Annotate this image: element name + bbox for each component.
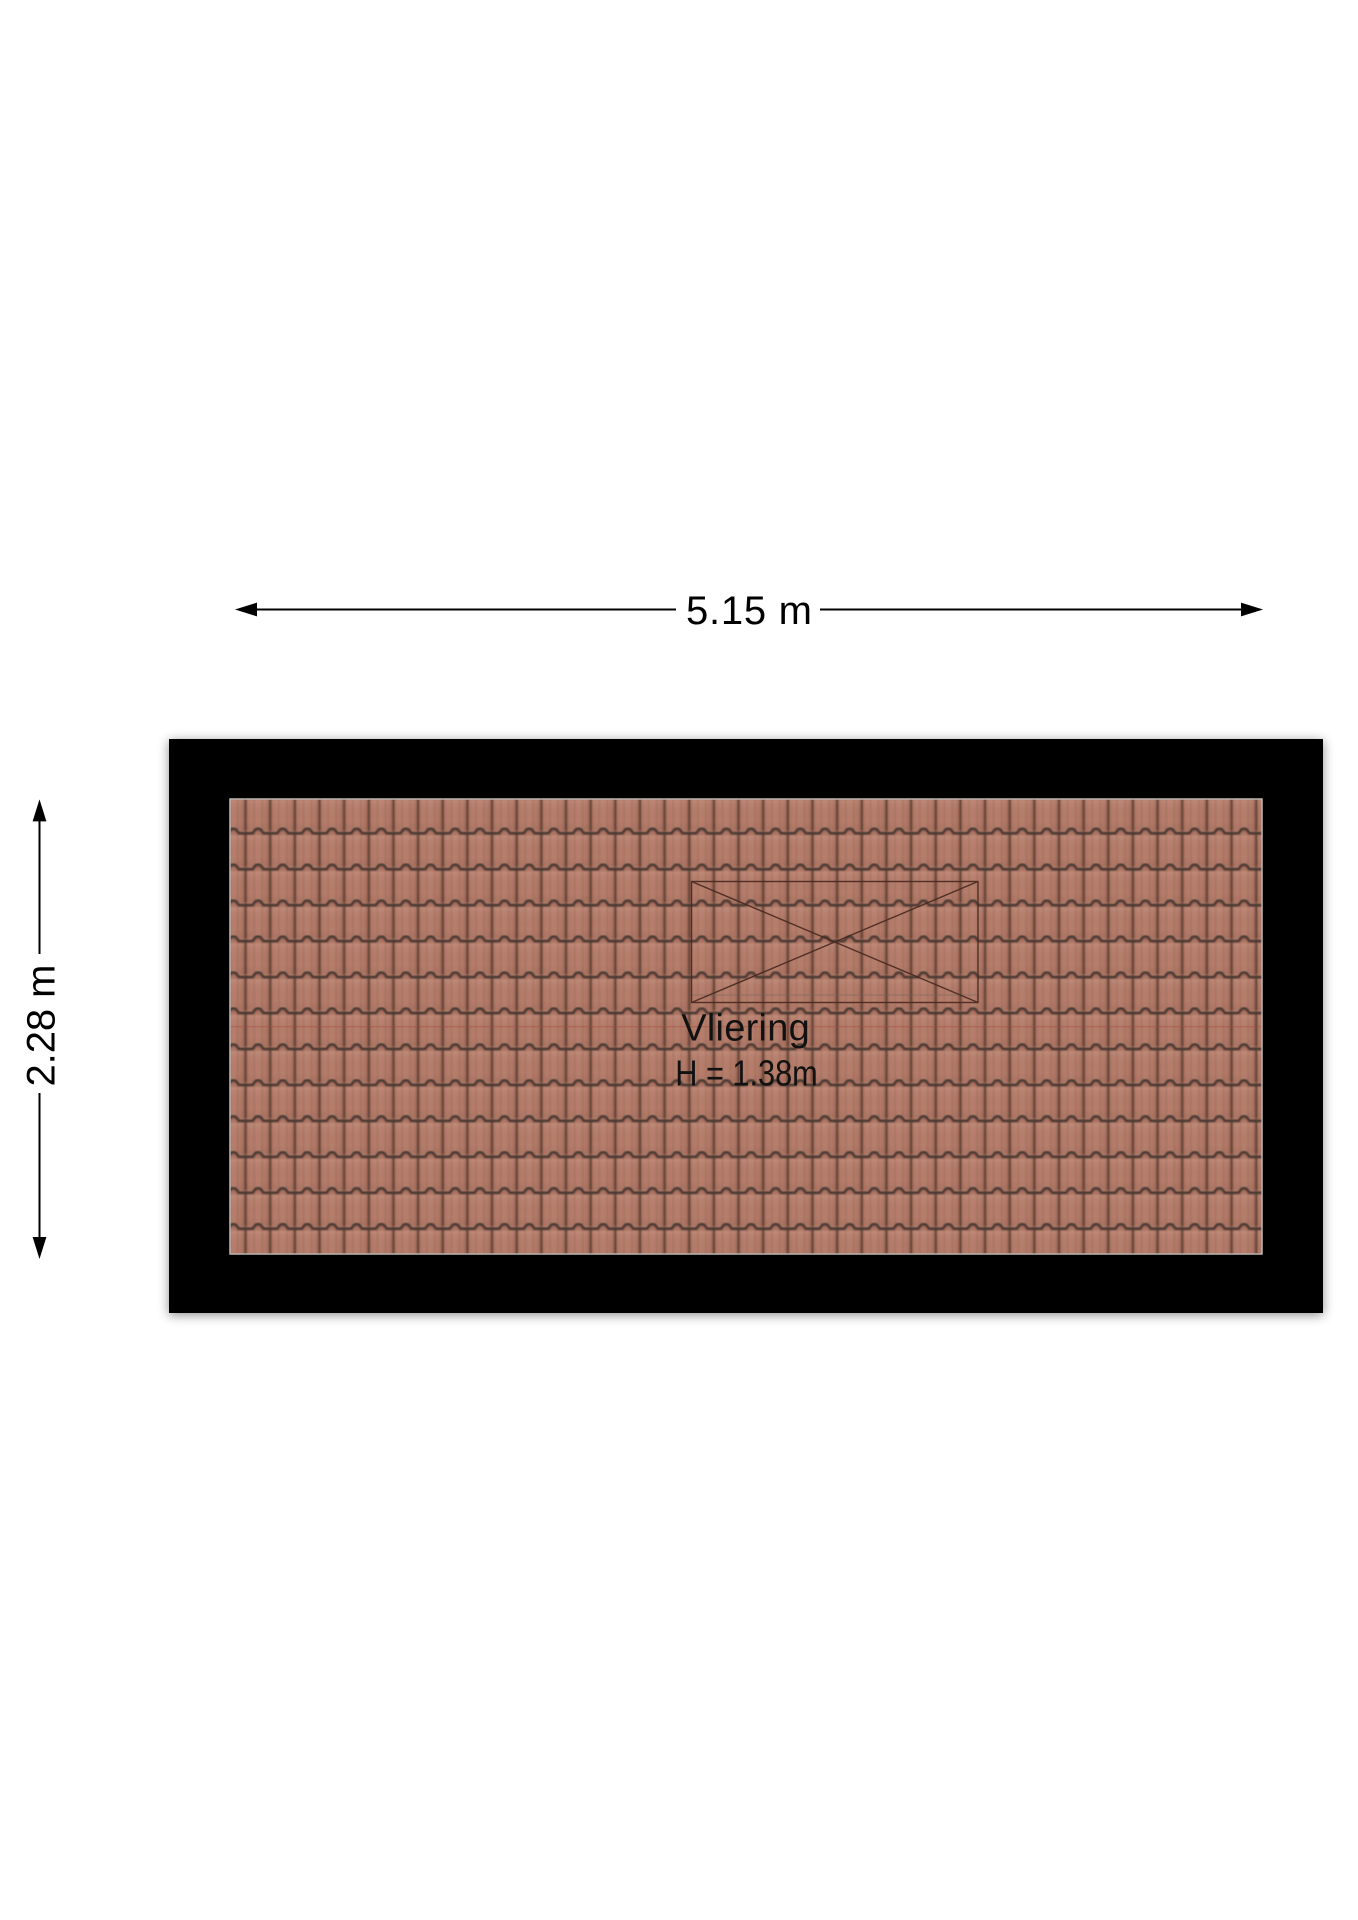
- svg-text:5.15 m: 5.15 m: [686, 589, 812, 633]
- svg-text:2.28 m: 2.28 m: [19, 965, 63, 1087]
- svg-text:H = 1.38m: H = 1.38m: [675, 1053, 818, 1094]
- svg-text:Vliering: Vliering: [681, 1007, 810, 1049]
